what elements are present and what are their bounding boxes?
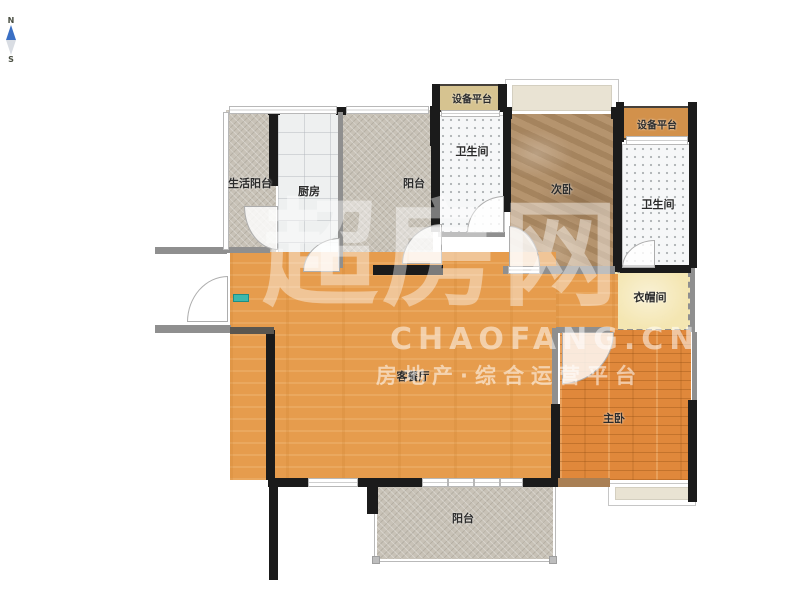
door-threshold xyxy=(422,478,448,487)
wall xyxy=(373,265,443,275)
window xyxy=(229,106,337,114)
wall xyxy=(558,478,610,487)
room-label-bathroom-top: 卫生间 xyxy=(456,143,489,159)
balcony-corner-post xyxy=(549,556,557,564)
window xyxy=(346,106,429,114)
wall xyxy=(503,112,511,212)
room-label-equipment-platform-right: 设备平台 xyxy=(637,117,677,132)
compass: N S xyxy=(2,16,20,64)
wall xyxy=(688,102,697,142)
floor-plan: 生活阳台 厨房 阳台 设备平台 卫生间 次卧 设备平台 卫生间 衣帽间 客餐厅 … xyxy=(0,0,800,600)
balcony-corner-post xyxy=(372,556,380,564)
wall xyxy=(230,327,274,334)
room-label-living-dining: 客餐厅 xyxy=(397,368,430,384)
wall xyxy=(226,247,270,253)
bay-window-glass xyxy=(615,487,689,500)
door-threshold xyxy=(508,266,540,274)
window xyxy=(448,478,474,487)
wall xyxy=(552,328,558,406)
wall xyxy=(266,330,275,480)
door-threshold xyxy=(474,478,500,487)
compass-needle-north-icon xyxy=(6,25,16,40)
room-label-living-balcony: 生活阳台 xyxy=(228,175,272,191)
window xyxy=(441,110,500,117)
wall xyxy=(268,478,308,487)
wall xyxy=(358,478,422,487)
wall xyxy=(523,478,558,487)
door-arc-entry xyxy=(187,276,228,322)
wall xyxy=(690,268,695,332)
wall xyxy=(689,142,697,268)
wall xyxy=(551,404,560,480)
wall xyxy=(613,112,622,272)
room-label-equipment-platform-top: 设备平台 xyxy=(452,91,492,106)
room-label-bedroom-second: 次卧 xyxy=(551,181,573,197)
room-label-bathroom-right: 卫生间 xyxy=(642,196,675,212)
wall xyxy=(688,478,697,502)
room-living-dining xyxy=(230,252,556,480)
wall xyxy=(155,247,227,254)
room-label-bedroom-master: 主卧 xyxy=(603,410,625,426)
room-label-cloakroom: 衣帽间 xyxy=(634,289,667,305)
wall xyxy=(431,110,440,232)
wall xyxy=(688,400,697,484)
window xyxy=(500,478,523,487)
wall xyxy=(432,84,440,112)
compass-needle-south-icon xyxy=(6,40,16,55)
room-label-balcony-top: 阳台 xyxy=(403,175,425,191)
room-corridor xyxy=(556,274,618,330)
wall xyxy=(692,332,697,402)
compass-north-label: N xyxy=(2,16,20,25)
wall xyxy=(155,325,231,333)
entry-marker xyxy=(233,294,249,302)
wall xyxy=(269,480,278,580)
compass-south-label: S xyxy=(2,55,20,64)
room-label-kitchen: 厨房 xyxy=(298,183,320,199)
bay-window-glass xyxy=(512,85,612,111)
window xyxy=(626,136,688,145)
window xyxy=(308,478,358,487)
room-label-balcony-bottom: 阳台 xyxy=(452,510,474,526)
